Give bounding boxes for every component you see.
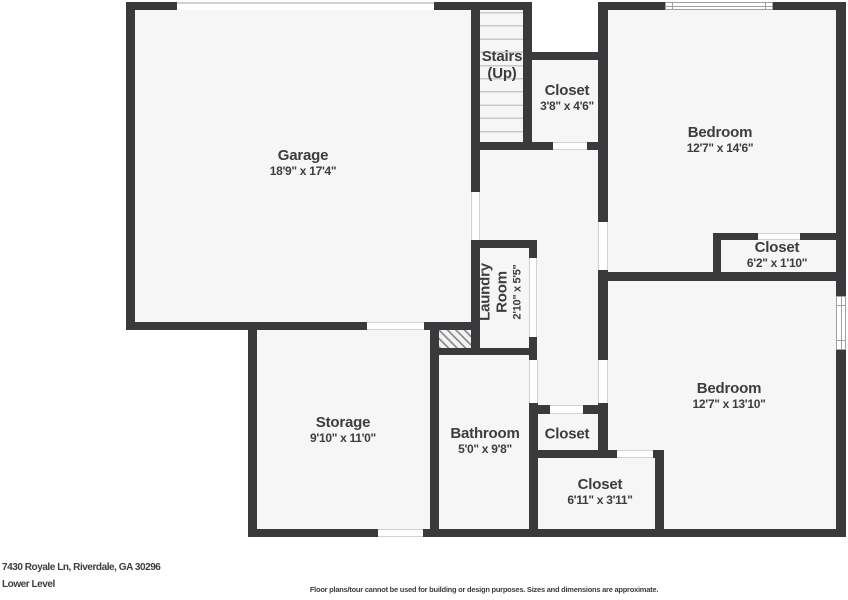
room-dimensions: 3'8" x 4'6" <box>540 99 594 114</box>
room-label-garage: Garage18'9" x 17'4" <box>270 147 337 179</box>
room-label-closet-upper: Closet3'8" x 4'6" <box>540 82 594 114</box>
wall <box>836 2 846 537</box>
window <box>836 296 846 350</box>
room-label-closet-bedroom-1: Closet6'2" x 1'10" <box>747 239 807 271</box>
room-label-laundry: Laundry Room2'10" x 5'5" <box>477 259 526 325</box>
room-label-closet-bottom: Closet6'11" x 3'11" <box>567 476 632 508</box>
door-opening <box>367 322 424 330</box>
wall <box>248 529 846 537</box>
door-opening <box>378 529 423 537</box>
room-dimensions: 6'11" x 3'11" <box>567 493 632 508</box>
wall <box>598 272 846 281</box>
room-dimensions: 9'10" x 11'0" <box>310 431 376 446</box>
room-label-bathroom: Bathroom5'0" x 9'8" <box>450 425 519 457</box>
room-dimensions: 6'2" x 1'10" <box>747 256 807 271</box>
footer-address: 7430 Royale Ln, Riverdale, GA 30296 <box>2 562 160 573</box>
room-name: Closet <box>747 239 807 256</box>
wall <box>598 2 608 222</box>
wall <box>532 52 600 60</box>
room-name: Bedroom <box>687 124 754 141</box>
room-label-storage: Storage9'10" x 11'0" <box>310 414 376 446</box>
wall <box>583 405 608 414</box>
room-label-bedroom-2: Bedroom12'7" x 13'10" <box>693 380 766 412</box>
wall <box>434 2 532 10</box>
hatched-area <box>439 330 471 348</box>
door-opening <box>471 192 480 240</box>
room-dimensions: 2'10" x 5'5" <box>511 259 526 325</box>
wall <box>430 348 537 355</box>
door-opening <box>529 258 537 337</box>
room-name: Garage <box>270 147 337 164</box>
room-dimensions: (Up) <box>482 65 523 82</box>
room-dimensions: 18'9" x 17'4" <box>270 164 337 179</box>
door-opening <box>598 222 608 270</box>
room-label-stairs: Stairs(Up) <box>482 48 523 82</box>
wall <box>471 10 480 192</box>
room-label-closet-middle: Closet <box>545 426 590 443</box>
room-name: Closet <box>567 476 632 493</box>
room-name: Laundry Room <box>477 259 511 325</box>
door-opening <box>553 142 587 150</box>
door-opening <box>529 360 538 403</box>
wall <box>655 450 664 537</box>
wall <box>126 322 367 330</box>
room-name: Closet <box>540 82 594 99</box>
room-dimensions: 12'7" x 14'6" <box>687 141 754 156</box>
wall <box>529 450 617 458</box>
door-opening <box>598 360 608 403</box>
wall <box>430 330 439 537</box>
room-name: Bathroom <box>450 425 519 442</box>
door-opening <box>617 450 653 458</box>
footer-disclaimer: Floor plans/tour cannot be used for buil… <box>310 585 658 594</box>
room-label-bedroom-1: Bedroom12'7" x 14'6" <box>687 124 754 156</box>
garage-door-opening <box>177 2 434 10</box>
room-name: Bedroom <box>693 380 766 397</box>
wall <box>523 2 532 150</box>
wall <box>471 142 553 150</box>
wall <box>248 322 257 537</box>
wall <box>126 2 135 330</box>
room-name: Stairs <box>482 48 523 65</box>
wall <box>471 240 537 248</box>
footer-level: Lower Level <box>2 579 55 590</box>
room-name: Closet <box>545 426 590 443</box>
wall <box>713 233 721 279</box>
wall <box>529 405 550 414</box>
floor-plan: Garage18'9" x 17'4"Stairs(Up)Closet3'8" … <box>0 0 848 600</box>
room-dimensions: 12'7" x 13'10" <box>693 397 766 412</box>
wall <box>529 248 537 258</box>
window <box>665 2 773 10</box>
door-opening <box>550 405 583 414</box>
outside-area <box>532 0 598 52</box>
room-dimensions: 5'0" x 9'8" <box>450 442 519 457</box>
room-name: Storage <box>310 414 376 431</box>
wall <box>529 403 538 537</box>
wall <box>598 270 608 360</box>
